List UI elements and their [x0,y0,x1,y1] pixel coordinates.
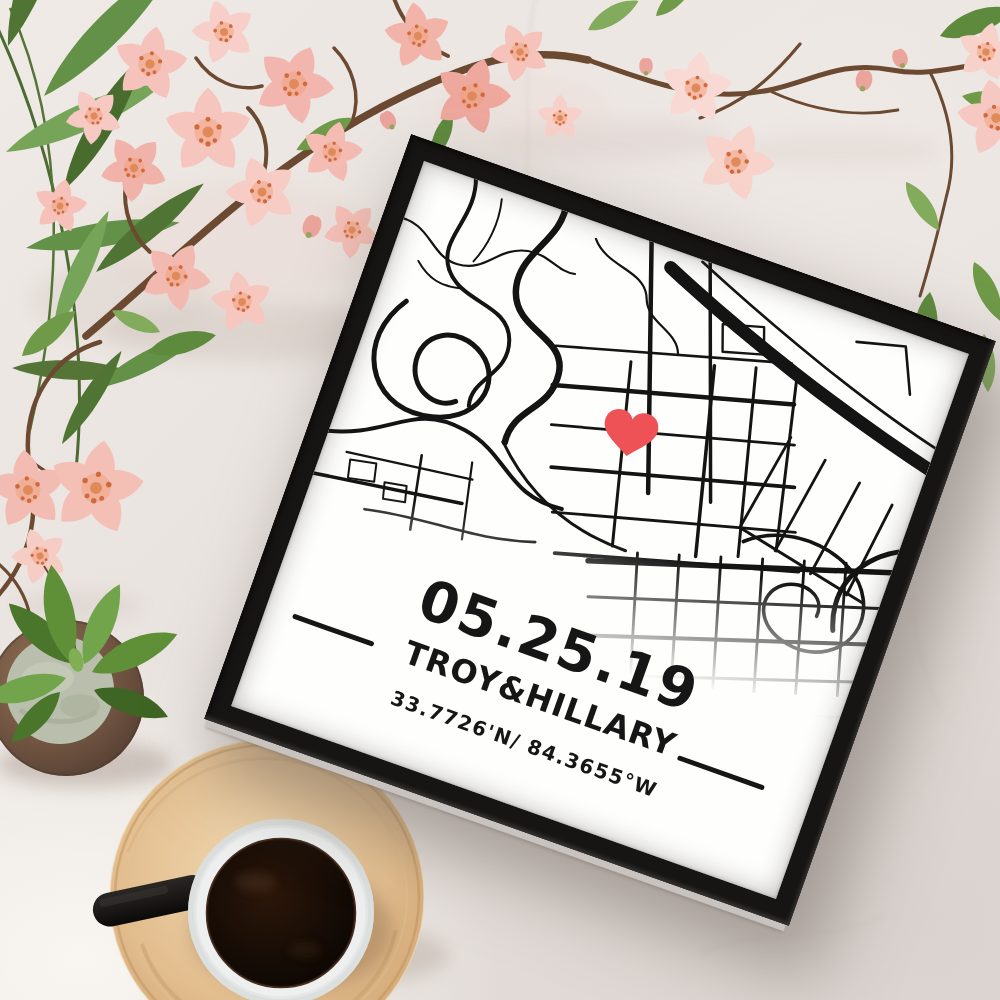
cherry-blossom [0,446,74,535]
cherry-blossom [26,173,93,238]
cherry-blossom [653,47,739,130]
picture-frame: 05.25.19 TROY&HILLARY 33.7726'N/ 84.3655… [204,134,995,925]
map-print: 05.25.19 TROY&HILLARY 33.7726'N/ 84.3655… [231,161,969,899]
pot-shadow [0,740,172,788]
cherry-blossom [182,0,265,73]
cherry-blossom [2,519,78,593]
blossom-bud [377,108,400,132]
cherry-blossom [162,88,255,176]
cherry-blossom [684,111,789,214]
cherry-blossom [54,76,135,155]
cherry-blossom [204,266,279,339]
cherry-blossom [479,12,561,92]
left-greenery [0,0,211,470]
blossom-bud [854,69,874,93]
blossom-bud [639,58,653,76]
street-map [231,161,969,899]
cherry-blossom [239,30,349,138]
cherry-blossom [535,95,584,142]
ceramic-pot [0,620,144,776]
potted-plant [0,563,183,788]
cherry-blossom [38,432,154,544]
cherry-blossom [949,16,1000,87]
cherry-blossom [378,0,458,74]
cherry-blossom [421,46,523,145]
cherry-blossom [214,146,309,239]
moss-soil [6,636,114,744]
coffee-cup [188,819,374,1000]
blossom-bud [890,47,910,70]
tabletop-photo-scene: 05.25.19 TROY&HILLARY 33.7726'N/ 84.3655… [0,0,1000,1000]
plant-leaves [0,563,183,748]
cherry-blossom [949,72,1000,163]
cup-handle [90,872,212,930]
cherry-blossom [105,20,196,108]
cherry-blossom [293,114,372,190]
cherry-blossom [127,228,225,324]
coffee-surface [207,839,355,987]
blossom-bud [299,213,324,241]
cherry-blossom [85,119,183,216]
